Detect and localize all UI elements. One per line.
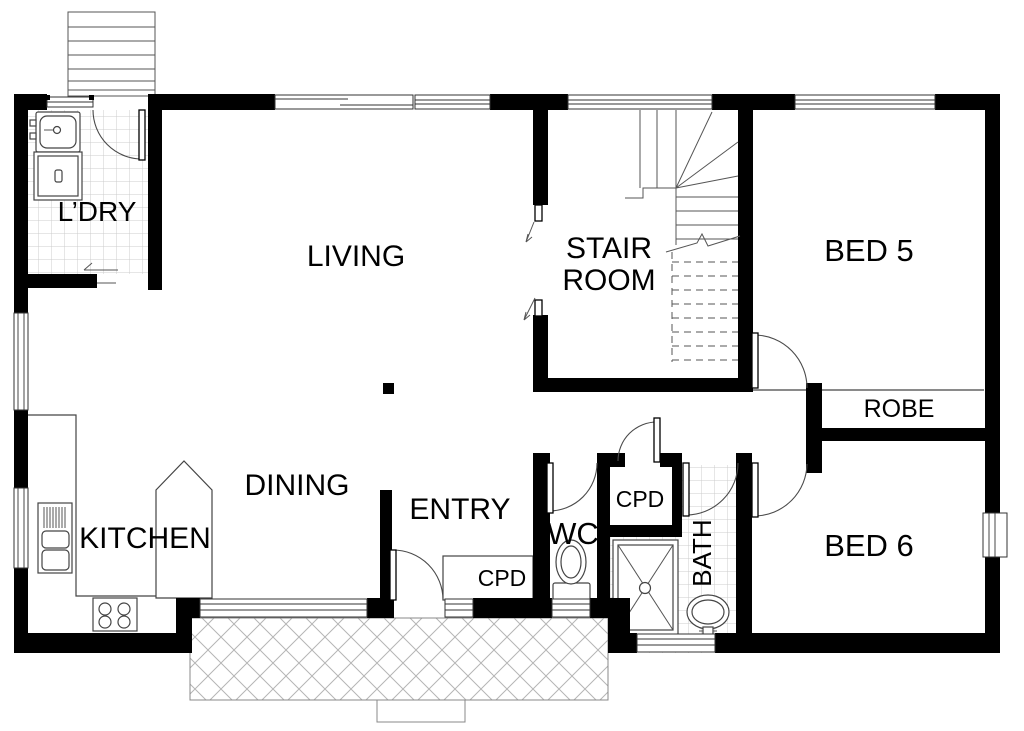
bath-right-wall (736, 453, 752, 653)
cpd-right-wall (672, 453, 682, 537)
exterior-stairs (68, 12, 155, 96)
room-label-entry: ENTRY (409, 493, 510, 526)
column (383, 383, 394, 394)
robe-bed6-wall (816, 428, 985, 441)
stair-bottom-wall (533, 378, 753, 392)
bed6-window (983, 513, 1007, 557)
stair-left-wall-upper (533, 110, 548, 205)
bed5-window (795, 95, 935, 109)
stair-opening-jamb-lower (535, 300, 542, 316)
living-left-window (14, 313, 28, 410)
room-label-dining: DINING (245, 469, 350, 502)
room-label-kitchen: KITCHEN (79, 522, 211, 555)
kitchen-window (14, 488, 28, 568)
entry-sidelight-window (445, 599, 473, 617)
bath-window (637, 634, 715, 652)
stair-opening-jamb-upper (535, 205, 542, 221)
room-label-living: LIVING (307, 240, 405, 273)
room-label-cpd-hall: CPD (616, 486, 665, 512)
room-label-wc: WC (547, 516, 599, 551)
laundry-tub (30, 112, 80, 152)
floor-plan: L’DRY LIVING STAIR ROOM BED 5 ROBE BED 6… (0, 0, 1024, 731)
room-label-bed6: BED 6 (824, 528, 914, 563)
wc-window (552, 599, 590, 617)
living-window-sliding (275, 95, 413, 109)
laundry-bottom-wall (28, 274, 97, 288)
room-label-bed5: BED 5 (824, 233, 914, 268)
room-label-robe: ROBE (864, 395, 935, 423)
living-window-2 (415, 95, 490, 109)
porch-step (377, 700, 465, 722)
laundry-right-wall (148, 110, 162, 290)
room-label-cpd-entry: CPD (478, 565, 527, 591)
kitchen-sink (38, 503, 72, 573)
cpd-bottom-wall (607, 525, 680, 537)
back-door-sill (45, 95, 94, 107)
room-label-stair-line1: STAIR (566, 232, 652, 265)
room-label-stair-line2: ROOM (562, 264, 655, 297)
stove-cooktop (93, 598, 137, 631)
dining-window (200, 599, 367, 617)
stair-room-window (568, 95, 712, 109)
washing-machine (34, 152, 82, 200)
room-label-bath: BATH (687, 519, 717, 586)
stair-right-wall (738, 110, 753, 392)
room-label-laundry: L’DRY (58, 196, 137, 227)
